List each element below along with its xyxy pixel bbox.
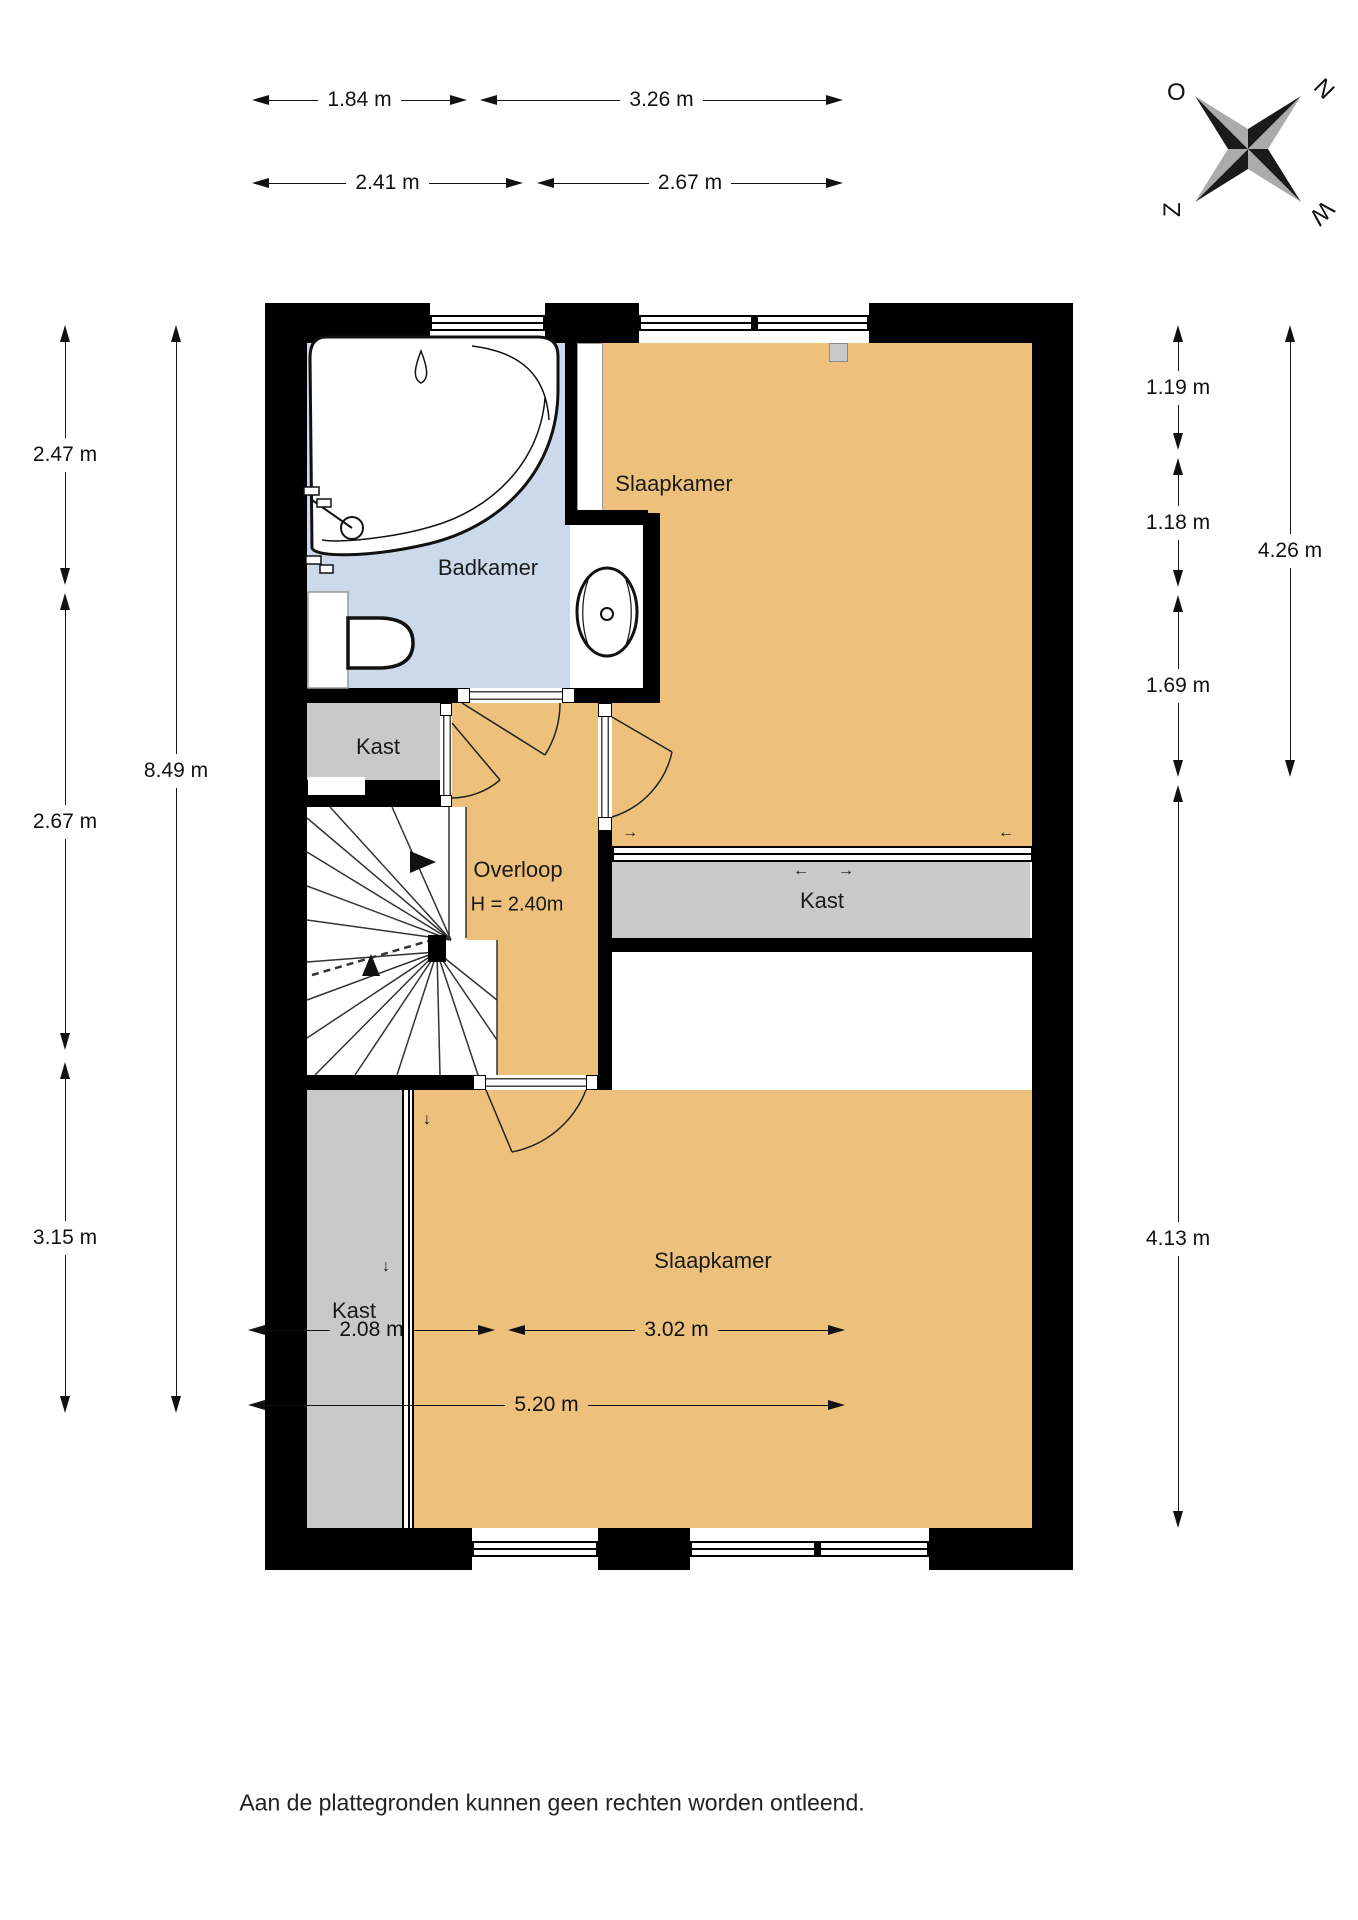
compass-label-z: Z (1159, 202, 1186, 217)
dim-right-2: 1.18 m (1163, 458, 1193, 587)
toilet-icon (308, 592, 413, 688)
room-label-overloop: Overloop (473, 857, 562, 883)
door-swings (452, 703, 672, 1152)
dim-label: 2.67 m (649, 171, 731, 195)
sink-icon (577, 568, 637, 656)
dim-label: 2.41 m (346, 171, 428, 195)
dim-top-2b: 2.67 m (537, 169, 843, 197)
dim-label: 2.67 m (33, 805, 97, 839)
dim-label: 2.47 m (33, 438, 97, 472)
dim-label: 1.19 m (1146, 371, 1210, 405)
dim-label: 3.15 m (33, 1221, 97, 1255)
compass-label-n: N (1308, 73, 1339, 104)
dim-right-total: 4.26 m (1275, 325, 1305, 777)
compass-rose-icon: O N Z W (1152, 52, 1344, 238)
plan-linework (0, 0, 1358, 1920)
dim-label: 8.49 m (144, 754, 208, 788)
slide-arrow-icon: ↓ (423, 1111, 431, 1129)
dim-left-1: 2.47 m (50, 325, 80, 585)
dim-label: 4.26 m (1258, 534, 1322, 568)
dim-right-4: 4.13 m (1163, 785, 1193, 1528)
dim-label: 3.02 m (635, 1318, 717, 1342)
room-label-badkamer: Badkamer (438, 555, 538, 581)
dim-bottom-total: 5.20 m (248, 1391, 845, 1419)
slide-arrow-icon: ↓ (382, 1258, 390, 1276)
dim-label: 1.69 m (1146, 669, 1210, 703)
bathroom-door-swing (462, 703, 560, 755)
disclaimer-text: Aan de plattegronden kunnen geen rechten… (239, 1790, 864, 1817)
stair-direction-arrow-icon (410, 851, 436, 873)
dim-left-3: 3.15 m (50, 1062, 80, 1413)
dim-top-1b: 3.26 m (480, 86, 843, 114)
dim-right-3: 1.69 m (1163, 595, 1193, 777)
dim-left-total: 8.49 m (161, 325, 191, 1413)
dim-label: 4.13 m (1146, 1222, 1210, 1256)
compass-label-w: W (1304, 195, 1339, 230)
dim-label: 1.84 m (318, 88, 400, 112)
dim-label: 1.18 m (1146, 506, 1210, 540)
dim-top-2a: 2.41 m (252, 169, 523, 197)
slide-arrow-icon: ← (793, 862, 809, 880)
room-label-slaapkamer-top: Slaapkamer (615, 471, 732, 497)
dim-left-2: 2.67 m (50, 593, 80, 1050)
dim-bottom-1a: 2.08 m (248, 1316, 495, 1344)
slide-arrow-icon: → (838, 862, 854, 880)
compass-label-o: O (1167, 79, 1186, 106)
room-label-kast-mid: Kast (800, 888, 844, 914)
dim-label: 5.20 m (505, 1393, 587, 1417)
closet-top-door-swing (452, 723, 500, 798)
dim-label: 3.26 m (620, 88, 702, 112)
stairs (307, 807, 497, 1075)
room-label-kast-top: Kast (356, 734, 400, 760)
slide-arrow-icon: → (622, 824, 638, 842)
slide-arrow-icon: ← (998, 824, 1014, 842)
floor-plan: Badkamer Slaapkamer Slaapkamer Kast Kast… (0, 0, 1358, 1920)
bedroom-bottom-door-swing (486, 1090, 586, 1152)
dim-label: 2.08 m (330, 1318, 412, 1342)
bedroom-top-door-swing (612, 717, 672, 817)
dim-right-1: 1.19 m (1163, 325, 1193, 450)
dim-top-1a: 1.84 m (252, 86, 467, 114)
stair-newel (428, 935, 446, 962)
room-label-overloop-height: H = 2.40m (471, 894, 564, 917)
dim-bottom-1b: 3.02 m (508, 1316, 845, 1344)
bathtub-icon (304, 337, 558, 573)
room-label-slaapkamer-bottom: Slaapkamer (654, 1248, 771, 1274)
